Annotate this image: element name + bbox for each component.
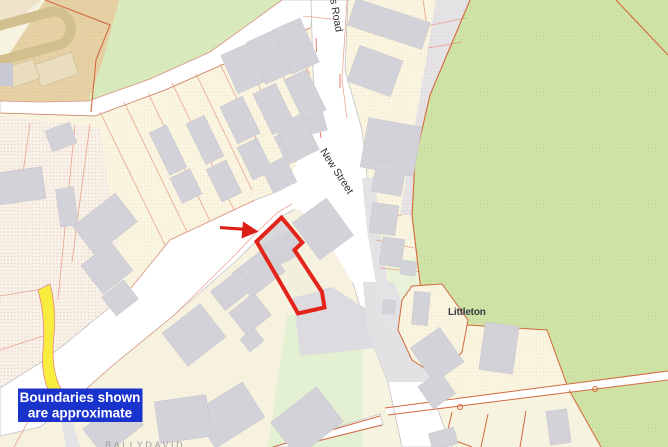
- svg-text:BALLYDAVID: BALLYDAVID: [105, 440, 185, 447]
- svg-text:Littleton: Littleton: [448, 307, 486, 318]
- svg-text:are approximate: are approximate: [28, 406, 133, 421]
- svg-text:Boundaries shown: Boundaries shown: [20, 390, 141, 405]
